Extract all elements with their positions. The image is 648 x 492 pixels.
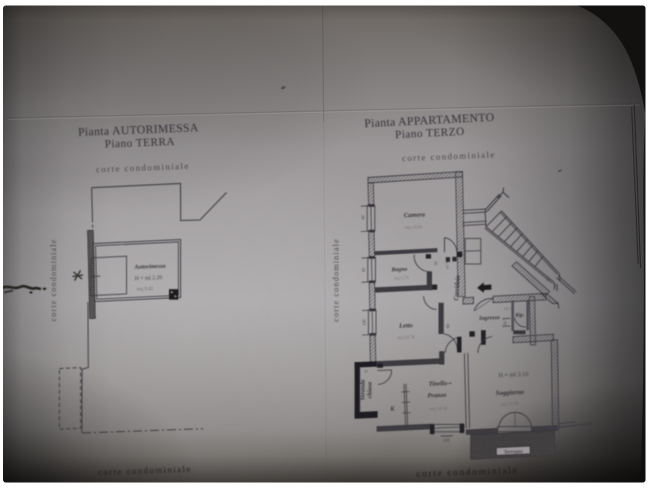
svg-text:Veranda: Veranda xyxy=(361,380,367,401)
svg-text:H = ml 3.10: H = ml 3.10 xyxy=(498,371,528,379)
svg-text:mq 9.42: mq 9.42 xyxy=(137,287,154,293)
svg-text:Tinello: Tinello xyxy=(428,380,447,388)
svg-text:Rip.: Rip. xyxy=(514,312,524,318)
svg-text:corte condominiale: corte condominiale xyxy=(49,239,58,322)
svg-text:70: 70 xyxy=(434,261,439,265)
svg-text:ml 4.1: ml 4.1 xyxy=(446,259,450,269)
svg-text:80: 80 xyxy=(446,324,451,328)
svg-text:Letto: Letto xyxy=(398,322,413,330)
svg-text:240: 240 xyxy=(443,437,451,442)
svg-text:Autorimessa: Autorimessa xyxy=(133,264,165,271)
svg-text:Pranzo: Pranzo xyxy=(427,392,446,400)
svg-text:mq 5.70: mq 5.70 xyxy=(394,275,409,281)
svg-text:corte condominiale: corte condominiale xyxy=(332,238,341,322)
svg-text:chiusa: chiusa xyxy=(368,382,374,398)
svg-text:Bagno: Bagno xyxy=(390,267,407,274)
svg-text:H = ml 2.20: H = ml 2.20 xyxy=(135,275,163,282)
svg-text:Soggiorno: Soggiorno xyxy=(496,389,525,397)
svg-text:40: 40 xyxy=(361,268,366,272)
svg-text:40: 40 xyxy=(360,215,365,219)
svg-text:30: 30 xyxy=(502,321,507,325)
svg-text:35: 35 xyxy=(364,369,368,373)
svg-text:mq 14.24: mq 14.24 xyxy=(430,406,448,412)
svg-text:mq 14.64: mq 14.64 xyxy=(405,224,423,230)
svg-text:mq 14.74: mq 14.74 xyxy=(397,334,415,340)
svg-text:Terrazzo: Terrazzo xyxy=(504,449,524,456)
svg-text:Camera: Camera xyxy=(404,211,426,219)
svg-text:Ingresso: Ingresso xyxy=(478,315,500,322)
svg-text:mq 21.30: mq 21.30 xyxy=(501,401,519,407)
svg-text:140: 140 xyxy=(362,319,367,325)
